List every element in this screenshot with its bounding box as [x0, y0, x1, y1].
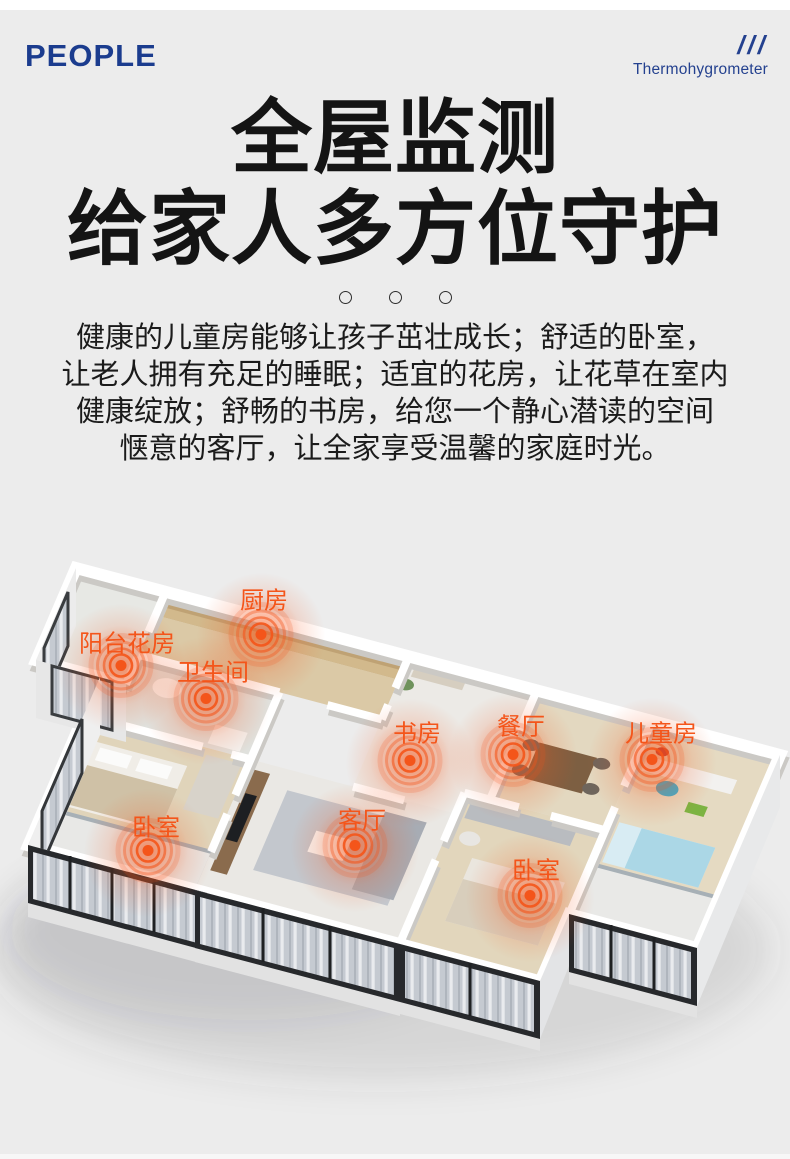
room-label: 卧室: [132, 808, 180, 843]
bottom-strip: [0, 1154, 790, 1159]
room-label: 客厅: [338, 801, 386, 836]
room-label: 餐厅: [497, 707, 545, 742]
room-label: 卧室: [512, 851, 560, 886]
product-detail-page: PEOPLE /// Thermohygrometer 全屋监测 给家人多方位守…: [0, 0, 790, 1159]
floorplan-scene: 厨房阳台花房卫生间书房餐厅儿童房卧室客厅卧室: [0, 0, 790, 1159]
room-label: 儿童房: [625, 714, 697, 749]
room-label: 阳台花房: [79, 624, 175, 659]
room-label: 卫生间: [177, 653, 249, 688]
floorplan-illustration: [0, 0, 790, 1159]
room-label: 厨房: [240, 581, 288, 616]
room-label: 书房: [393, 714, 441, 749]
